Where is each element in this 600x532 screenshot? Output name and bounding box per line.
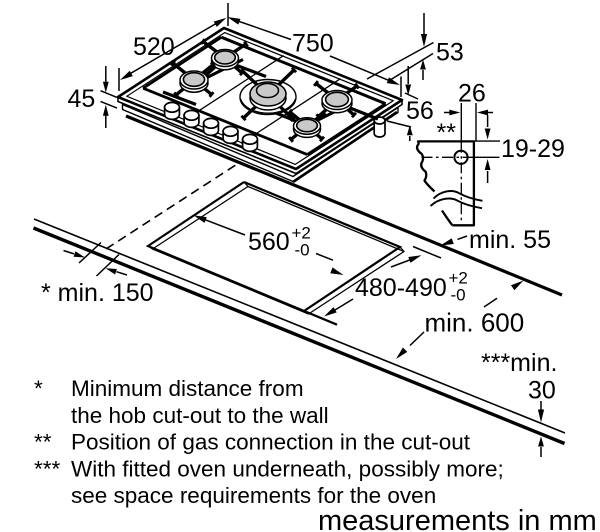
svg-text:min. 600: min. 600 — [425, 308, 525, 338]
svg-text:**: ** — [437, 119, 457, 147]
svg-text:***min.: ***min. — [481, 349, 557, 377]
svg-text:480-490: 480-490 — [355, 274, 447, 302]
svg-text:With fitted oven underneath, p: With fitted oven underneath, possibly mo… — [71, 456, 504, 481]
svg-text:-0: -0 — [295, 241, 310, 260]
svg-text:-0: -0 — [451, 286, 466, 305]
svg-text:***: *** — [34, 456, 61, 481]
svg-text:Position of gas connection in: Position of gas connection in the cut-ou… — [71, 430, 471, 455]
svg-text:*: * — [34, 376, 43, 401]
svg-text:Minimum distance from: Minimum distance from — [71, 376, 304, 401]
svg-text:26: 26 — [458, 80, 486, 108]
svg-text:45: 45 — [68, 85, 96, 113]
svg-text:53: 53 — [436, 39, 464, 67]
svg-text:19-29: 19-29 — [501, 135, 565, 163]
svg-text:the hob cut-out to the wall: the hob cut-out to the wall — [71, 403, 329, 428]
svg-text:750: 750 — [292, 30, 334, 58]
svg-text:min. 55: min. 55 — [469, 226, 551, 254]
svg-text:**: ** — [34, 430, 52, 455]
svg-text:30: 30 — [528, 377, 556, 405]
svg-text:measurements in mm: measurements in mm — [318, 505, 597, 532]
svg-text:520: 520 — [133, 33, 175, 61]
svg-text:56: 56 — [406, 97, 434, 125]
svg-text:* min. 150: * min. 150 — [41, 279, 154, 307]
svg-text:560: 560 — [248, 228, 290, 256]
